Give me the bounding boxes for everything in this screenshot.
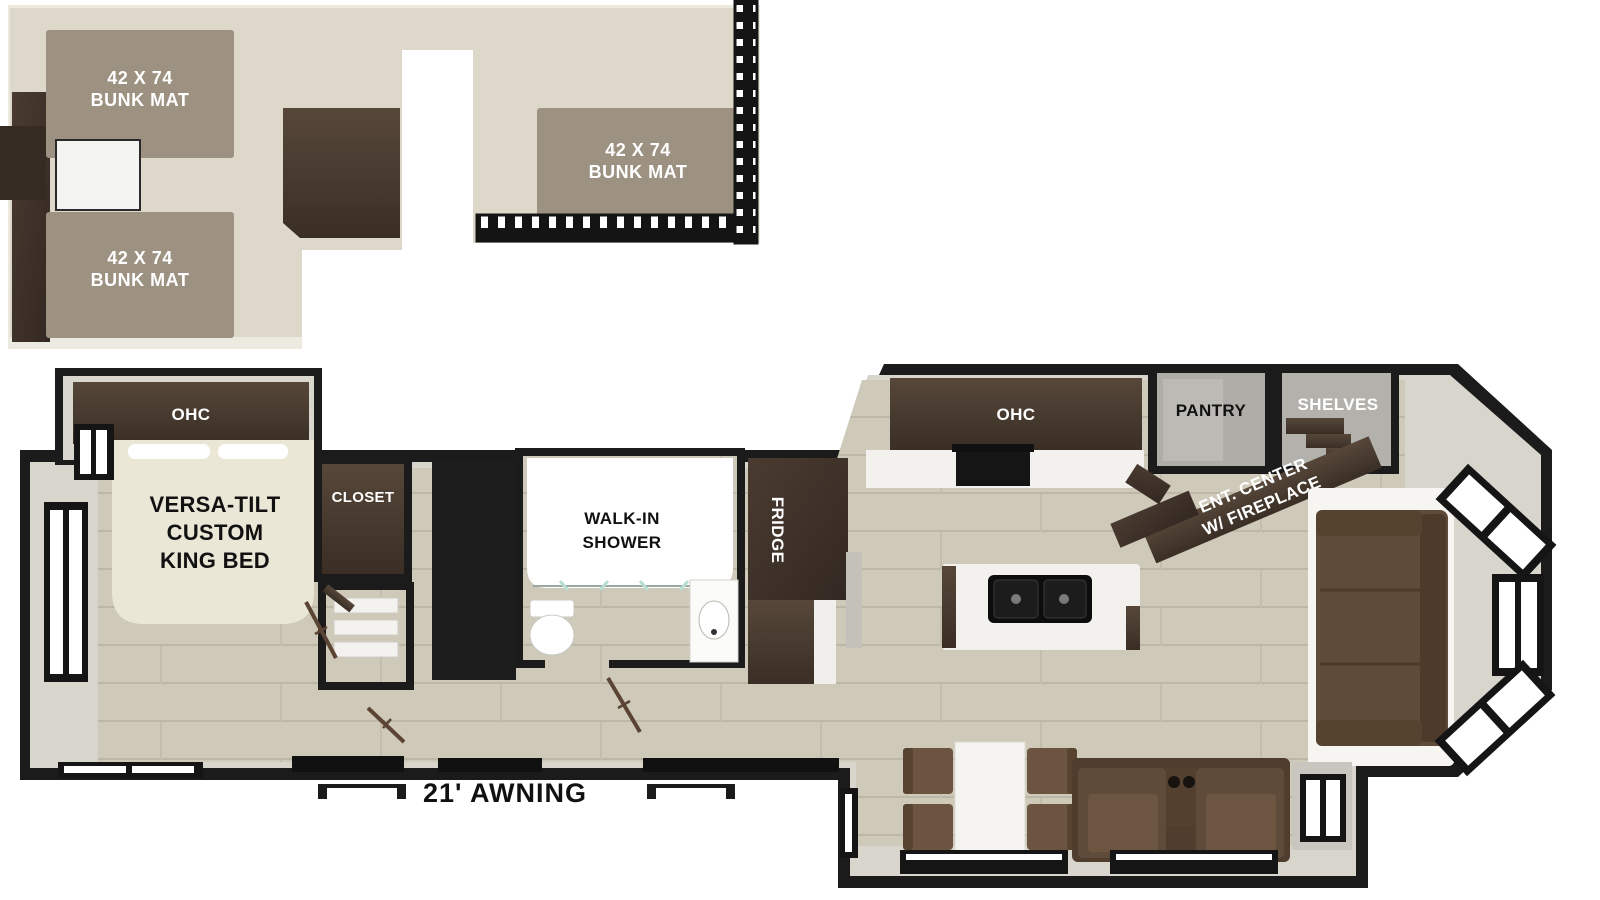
shower-label-1: WALK-IN [584, 509, 660, 528]
pantry-panel [1163, 379, 1223, 461]
pantry-label: PANTRY [1176, 401, 1247, 420]
shower-label-2: SHOWER [583, 533, 662, 552]
floorplan-svg: 42 X 74 BUNK MAT 42 X 74 BUNK MAT 42 X 7… [0, 0, 1600, 900]
bedroom-ohc-label: OHC [172, 405, 211, 424]
bed-label-1: VERSA-TILT [150, 492, 281, 517]
seat-cushion [1088, 794, 1158, 852]
kitchen-island [942, 564, 1140, 650]
bunk-mat-1: 42 X 74 BUNK MAT [46, 30, 234, 158]
window-slideout-right [1300, 774, 1346, 842]
loft-ladder-box [0, 126, 46, 200]
sofa-armrest [1316, 510, 1422, 536]
bunk-mat-1-label: BUNK MAT [91, 90, 190, 110]
dinette-table [955, 742, 1025, 868]
loft-floor-edge [10, 337, 302, 345]
toilet [530, 600, 574, 655]
sofa-backrest [1420, 514, 1446, 742]
bunk-mat-2-label: BUNK MAT [91, 270, 190, 290]
loft-stair-opening [402, 50, 473, 349]
kitchen-step [846, 552, 862, 648]
window-slideout-bottom-1 [900, 850, 1068, 874]
entry-threshold [643, 758, 839, 772]
loft-cabinet [283, 108, 400, 238]
bunk-mat-3: 42 X 74 BUNK MAT [537, 108, 740, 222]
loft-railing-front [477, 215, 739, 241]
closet-label: CLOSET [332, 489, 395, 506]
sofa-armrest [1316, 720, 1422, 746]
island-end-cap [942, 566, 956, 648]
double-sink [988, 575, 1092, 623]
stairwell [432, 462, 516, 680]
awning-bracket [647, 784, 735, 799]
kitchen-ohc-label: OHC [997, 405, 1036, 424]
entry-threshold [438, 758, 542, 772]
cabinet-below-fridge [748, 600, 814, 684]
main-floor: OHC VERSA-TILT CUSTOM KING BED CLOSET [20, 364, 1556, 888]
bunk-mat-2: 42 X 74 BUNK MAT [46, 212, 234, 338]
awning-label: 21' AWNING [423, 778, 587, 808]
loft: 42 X 74 BUNK MAT 42 X 74 BUNK MAT 42 X 7… [0, 0, 760, 349]
bunk-mat-1-size: 42 X 74 [107, 68, 173, 88]
window-bay-middle [1492, 574, 1544, 676]
loft-cutout [302, 250, 402, 349]
cabinet-counter-end [814, 600, 836, 684]
closet: CLOSET [314, 456, 412, 582]
window-slideout-bottom-2 [1110, 850, 1278, 874]
closet-interior [322, 464, 404, 574]
theater-seating [1072, 758, 1290, 862]
loft-railing-side [735, 0, 757, 243]
rv-floorplan: 42 X 74 BUNK MAT 42 X 74 BUNK MAT 42 X 7… [0, 0, 1600, 900]
dinette [903, 742, 1077, 868]
loft-step [334, 642, 398, 657]
chair-back [903, 804, 913, 850]
awning-bracket [318, 784, 406, 799]
fridge: FRIDGE [748, 458, 848, 600]
window-front [44, 502, 88, 682]
bathroom-sink [690, 580, 738, 662]
island-end-cap [1126, 606, 1140, 650]
sofa [1308, 488, 1454, 766]
bunk-mat-2-size: 42 X 74 [107, 248, 173, 268]
bunk-mat-3-label: BUNK MAT [589, 162, 688, 182]
range-hood [952, 444, 1034, 452]
cooktop [956, 452, 1030, 486]
bed-label-3: KING BED [160, 548, 270, 573]
window-slideout-left [840, 788, 858, 858]
bed-label-2: CUSTOM [167, 520, 264, 545]
bed-pillow-left [128, 444, 210, 459]
bunk-mat-3-size: 42 X 74 [605, 140, 671, 160]
loft-step [334, 620, 398, 635]
cup-holder [1168, 776, 1180, 788]
shelf-step [1286, 418, 1344, 434]
seat-cushion [1206, 794, 1276, 852]
bathroom-door-opening [545, 658, 609, 670]
loft-steps [318, 582, 414, 690]
shelves-label: SHELVES [1298, 395, 1379, 414]
loft-cutout [473, 243, 760, 349]
pantry: PANTRY [1148, 364, 1274, 474]
shelf-step [1306, 434, 1351, 448]
chair-back [903, 748, 913, 794]
bed-pillow-right [218, 444, 288, 459]
fridge-label: FRIDGE [768, 497, 787, 564]
cup-holder [1183, 776, 1195, 788]
window-bedroom-bottom [58, 762, 203, 778]
window-bed-slideout [74, 424, 114, 480]
loft-nightstand [56, 140, 140, 210]
entry-threshold [292, 756, 404, 772]
